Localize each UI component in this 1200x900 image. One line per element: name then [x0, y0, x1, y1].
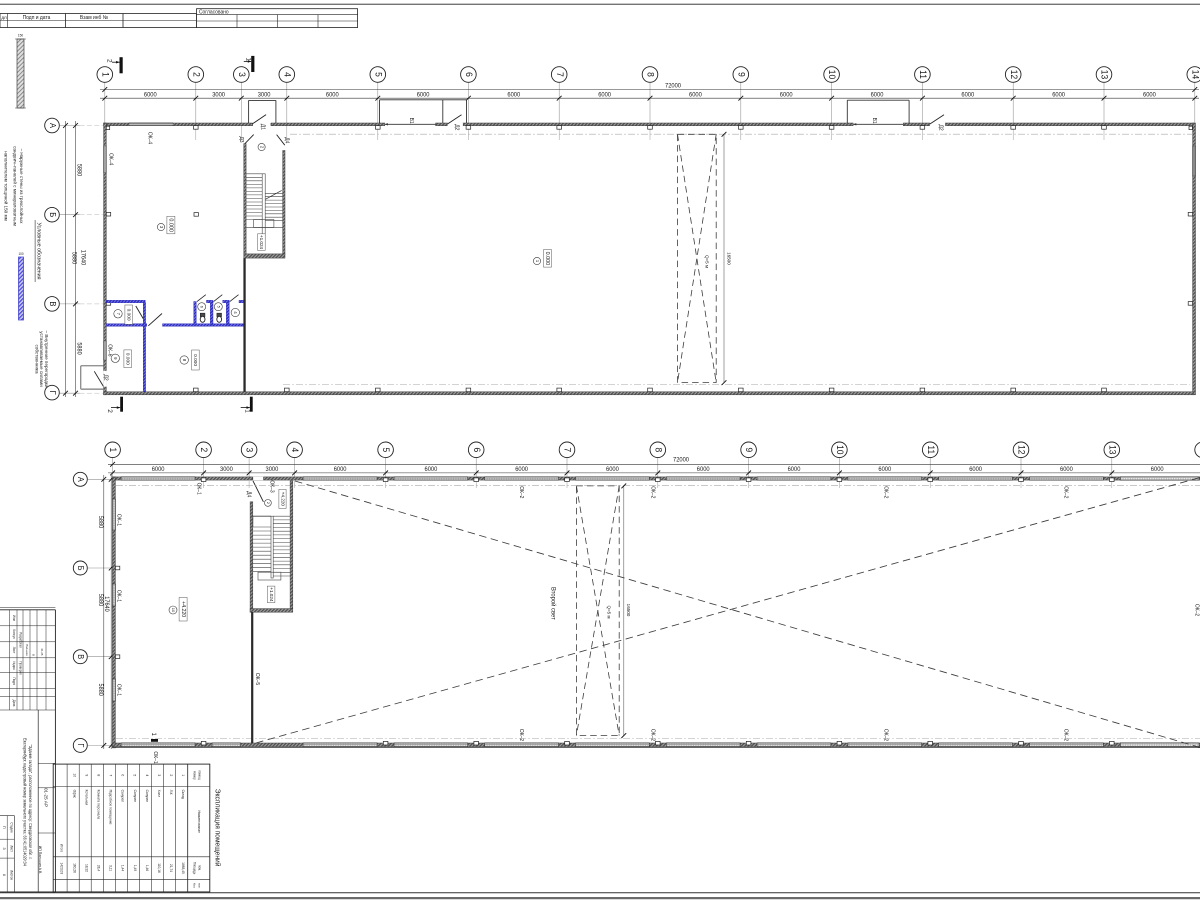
svg-text:ОК–2: ОК–2 [1063, 486, 1069, 498]
svg-text:6000: 6000 [334, 466, 347, 473]
svg-text:наполнителем толщиной 150 мм: наполнителем толщиной 150 мм [4, 151, 10, 221]
svg-text:Условные обозначения: Условные обозначения [35, 223, 41, 280]
svg-text:5: 5 [381, 447, 391, 452]
svg-text:2: 2 [106, 409, 113, 413]
svg-text:6000: 6000 [417, 91, 430, 98]
svg-text:0.000: 0.000 [544, 252, 550, 266]
svg-text:В1: В1 [871, 118, 877, 124]
svg-text:В1: В1 [408, 118, 414, 124]
svg-text:13: 13 [1107, 445, 1117, 454]
svg-text:+4.220: +4.220 [280, 492, 285, 507]
svg-text:6000: 6000 [780, 91, 793, 98]
svg-text:6000: 6000 [424, 466, 437, 473]
svg-text:6000: 6000 [507, 91, 520, 98]
svg-text:Б: Б [48, 212, 57, 217]
svg-text:ОК–6: ОК–6 [106, 344, 112, 356]
svg-text:дл: дл [1, 15, 7, 20]
svg-text:1: 1 [100, 72, 110, 77]
svg-text:ОК–2: ОК–2 [883, 729, 889, 741]
svg-text:5: 5 [133, 774, 137, 776]
svg-text:6: 6 [121, 774, 125, 776]
svg-text:5880: 5880 [71, 252, 77, 265]
svg-text:4: 4 [145, 774, 149, 776]
svg-text:5880: 5880 [75, 164, 81, 177]
svg-text:3,11: 3,11 [109, 865, 113, 871]
svg-text:ОК–5: ОК–5 [254, 673, 260, 685]
svg-text:4: 4 [290, 447, 300, 452]
svg-text:1,49: 1,49 [133, 865, 137, 871]
svg-text:17640: 17640 [80, 250, 86, 266]
svg-text:Q=5 м: Q=5 м [704, 255, 709, 268]
svg-text:160,26: 160,26 [72, 863, 76, 873]
svg-text:7: 7 [555, 72, 565, 77]
svg-text:3000: 3000 [212, 91, 225, 98]
svg-text:1: 1 [108, 447, 118, 452]
svg-text:6000: 6000 [871, 91, 884, 98]
svg-text:Б: Б [76, 566, 85, 571]
svg-text:0.000: 0.000 [168, 218, 174, 232]
svg-text:Наименование: Наименование [197, 811, 201, 833]
svg-text:ОК–3: ОК–3 [268, 480, 274, 492]
svg-text:+1.024: +1.024 [259, 235, 264, 250]
svg-text:01-25 АР: 01-25 АР [44, 788, 49, 807]
svg-text:3000: 3000 [265, 466, 278, 473]
svg-text:8: 8 [653, 447, 663, 452]
svg-text:5880: 5880 [97, 684, 103, 697]
svg-text:ИП Пальшин А.В.: ИП Пальшин А.В. [38, 846, 42, 875]
svg-text:6000: 6000 [144, 91, 157, 98]
svg-text:1: 1 [245, 58, 252, 62]
svg-text:8: 8 [646, 72, 656, 77]
svg-text:Итого: Итого [60, 844, 64, 853]
svg-text:6000: 6000 [1052, 91, 1065, 98]
svg-text:ОК–4: ОК–4 [146, 132, 152, 144]
svg-text:16500: 16500 [626, 604, 631, 617]
svg-text:10: 10 [835, 445, 845, 454]
svg-text:3: 3 [2, 848, 6, 850]
svg-text:Взам инб №: Взам инб № [80, 15, 109, 21]
svg-text:10: 10 [171, 608, 176, 613]
svg-text:72000: 72000 [665, 82, 682, 89]
svg-text:3: 3 [245, 447, 255, 452]
svg-text:72000: 72000 [673, 456, 690, 463]
svg-text:Кол.уч: Кол.уч [12, 629, 16, 638]
svg-text:В: В [48, 301, 57, 306]
svg-text:7: 7 [109, 774, 113, 776]
svg-text:Д4: Д4 [245, 491, 251, 497]
svg-text:Комната персонала: Комната персонала [97, 790, 101, 820]
svg-text:ОК–1: ОК–1 [115, 684, 121, 696]
svg-text:0.000: 0.000 [124, 353, 130, 365]
svg-text:0.000: 0.000 [125, 309, 131, 321]
svg-text:6000: 6000 [598, 91, 611, 98]
svg-text:Кол.: Кол. [193, 883, 197, 889]
svg-text:1: 1 [244, 409, 251, 413]
svg-text:0.000: 0.000 [192, 354, 198, 366]
svg-text:сандвич–панелей с минераловатн: сандвич–панелей с минераловатным [13, 146, 19, 226]
svg-text:6: 6 [2, 874, 6, 876]
svg-text:ОК–1: ОК–1 [115, 514, 121, 526]
svg-text:1,44: 1,44 [121, 865, 125, 871]
svg-text:9: 9 [744, 447, 754, 452]
svg-text:13: 13 [1100, 70, 1110, 79]
svg-text:Дата: Дата [12, 700, 16, 707]
svg-text:ОК–2: ОК–2 [650, 486, 656, 498]
svg-text:собственника: собственника [35, 344, 40, 373]
svg-text:Д2: Д2 [937, 125, 943, 131]
svg-text:+1.024: +1.024 [269, 587, 274, 602]
svg-text:3: 3 [237, 72, 247, 77]
svg-text:Д3: Д3 [238, 136, 244, 142]
svg-text:18,92: 18,92 [85, 864, 89, 872]
svg-text:110,16: 110,16 [157, 863, 161, 873]
svg-text:Q=5 м: Q=5 м [606, 605, 611, 618]
svg-text:5880: 5880 [97, 594, 103, 607]
svg-text:А: А [48, 123, 57, 129]
svg-text:3: 3 [157, 774, 161, 776]
svg-text:Котельная: Котельная [85, 790, 89, 806]
svg-text:А: А [76, 477, 85, 483]
svg-text:6000: 6000 [788, 466, 801, 473]
svg-text:Екатеринбург, кадастровый номе: Екатеринбург, кадастровый номер земельно… [22, 738, 27, 866]
svg-text:Лист: Лист [12, 647, 16, 654]
svg-text:10: 10 [72, 773, 76, 777]
svg-text:– Наружные стены из трехслойны: – Наружные стены из трехслойных [19, 149, 25, 225]
svg-text:Лист: Лист [10, 845, 14, 852]
svg-text:6: 6 [472, 447, 482, 452]
svg-text:2: 2 [199, 447, 209, 452]
svg-text:2: 2 [106, 59, 113, 63]
svg-text:Офис: Офис [72, 790, 76, 799]
svg-text:150: 150 [18, 33, 23, 37]
svg-text:10: 10 [827, 70, 837, 79]
svg-text:Пальшин: Пальшин [25, 644, 29, 656]
svg-text:1883,45: 1883,45 [181, 862, 185, 874]
svg-text:14: 14 [1190, 70, 1200, 79]
svg-text:6000: 6000 [606, 466, 619, 473]
svg-text:Г: Г [48, 391, 57, 396]
svg-text:28,4: 28,4 [97, 865, 101, 871]
svg-text:В: В [76, 654, 85, 659]
svg-text:01.25: 01.25 [40, 649, 44, 656]
svg-text:5880: 5880 [75, 342, 81, 355]
svg-text:Л.К: Л.К [169, 790, 173, 795]
svg-text:Второй свет: Второй свет [550, 587, 557, 620]
svg-text:6000: 6000 [1143, 91, 1156, 98]
svg-text:Подп: Подп [12, 677, 16, 684]
svg-text:ОК–2: ОК–2 [518, 729, 524, 741]
svg-text:6000: 6000 [878, 466, 891, 473]
svg-text:2: 2 [169, 774, 173, 776]
svg-text:Экспликация помещений: Экспликация помещений [213, 789, 221, 867]
svg-text:11: 11 [918, 70, 928, 79]
svg-text:№док: №док [12, 661, 16, 670]
svg-text:12: 12 [1017, 445, 1027, 454]
svg-text:помещ.: помещ. [198, 770, 202, 780]
svg-text:1,46: 1,46 [145, 865, 149, 871]
svg-text:Д4: Д4 [283, 137, 289, 143]
svg-text:9: 9 [84, 774, 88, 776]
svg-text:Склад: Склад [181, 790, 185, 799]
svg-text:ОК–1: ОК–1 [152, 751, 158, 763]
svg-text:6000: 6000 [1151, 466, 1164, 473]
svg-text:Д2: Д2 [102, 375, 108, 381]
svg-text:Проверил: Проверил [19, 661, 23, 674]
svg-text:6000: 6000 [961, 91, 974, 98]
svg-text:9: 9 [736, 72, 746, 77]
svg-text:6000: 6000 [689, 91, 702, 98]
svg-text:П: П [2, 826, 6, 829]
svg-text:ОК–2: ОК–2 [1063, 729, 1069, 741]
svg-text:Санузел: Санузел [121, 790, 125, 803]
svg-text:пом.: пом. [198, 865, 202, 871]
svg-text:6: 6 [464, 72, 474, 77]
svg-text:6000: 6000 [1060, 466, 1073, 473]
svg-text:3000: 3000 [258, 91, 271, 98]
svg-text:16500: 16500 [726, 252, 731, 265]
svg-text:8: 8 [97, 774, 101, 776]
svg-text:7: 7 [563, 447, 573, 452]
svg-text:ОК–1: ОК–1 [115, 590, 121, 602]
svg-text:ОК–2: ОК–2 [650, 729, 656, 741]
svg-text:Изм: Изм [12, 615, 16, 621]
svg-text:Согласовано: Согласовано [199, 9, 229, 15]
svg-text:4: 4 [282, 72, 292, 77]
svg-text:6000: 6000 [326, 91, 339, 98]
svg-text:Подсобное помещение: Подсобное помещение [109, 790, 113, 825]
svg-text:Санузел: Санузел [133, 790, 137, 803]
svg-text:Санузел: Санузел [145, 790, 149, 803]
svg-text:2: 2 [191, 72, 201, 77]
svg-text:Номер: Номер [193, 771, 197, 780]
svg-text:1: 1 [181, 774, 185, 776]
svg-text:6000: 6000 [969, 466, 982, 473]
svg-text:ОК–2: ОК–2 [883, 486, 889, 498]
svg-text:В: В [32, 654, 36, 656]
svg-text:Д2: Д2 [453, 124, 459, 130]
svg-text:Площадь: Площадь [193, 862, 197, 875]
svg-text:5880: 5880 [97, 516, 103, 529]
svg-text:21,74: 21,74 [169, 864, 173, 872]
svg-text:1423,03: 1423,03 [60, 862, 64, 874]
svg-text:ОК–2: ОК–2 [518, 486, 524, 498]
svg-text:Разработал: Разработал [19, 632, 23, 648]
svg-text:3000: 3000 [220, 466, 233, 473]
svg-text:+4.220: +4.220 [180, 601, 186, 617]
svg-text:Стадия: Стадия [10, 822, 14, 832]
svg-text:Д1: Д1 [259, 124, 265, 130]
svg-text:100: 100 [18, 252, 23, 256]
svg-text:пом.: пом. [198, 883, 202, 889]
svg-text:12: 12 [1009, 70, 1019, 79]
svg-text:ОК–1: ОК–1 [196, 483, 202, 495]
svg-text:11: 11 [926, 445, 936, 454]
svg-text:Листов: Листов [10, 870, 14, 880]
svg-text:6000: 6000 [515, 466, 528, 473]
svg-text:ОК–4: ОК–4 [107, 153, 113, 165]
svg-text:Подп и дата: Подп и дата [23, 15, 51, 21]
svg-text:ОК–2: ОК–2 [1193, 604, 1199, 616]
svg-text:6000: 6000 [697, 466, 710, 473]
svg-text:6000: 6000 [152, 466, 165, 473]
svg-text:Холл: Холл [157, 790, 161, 798]
svg-text:17640: 17640 [103, 596, 109, 612]
svg-text:5: 5 [373, 72, 383, 77]
